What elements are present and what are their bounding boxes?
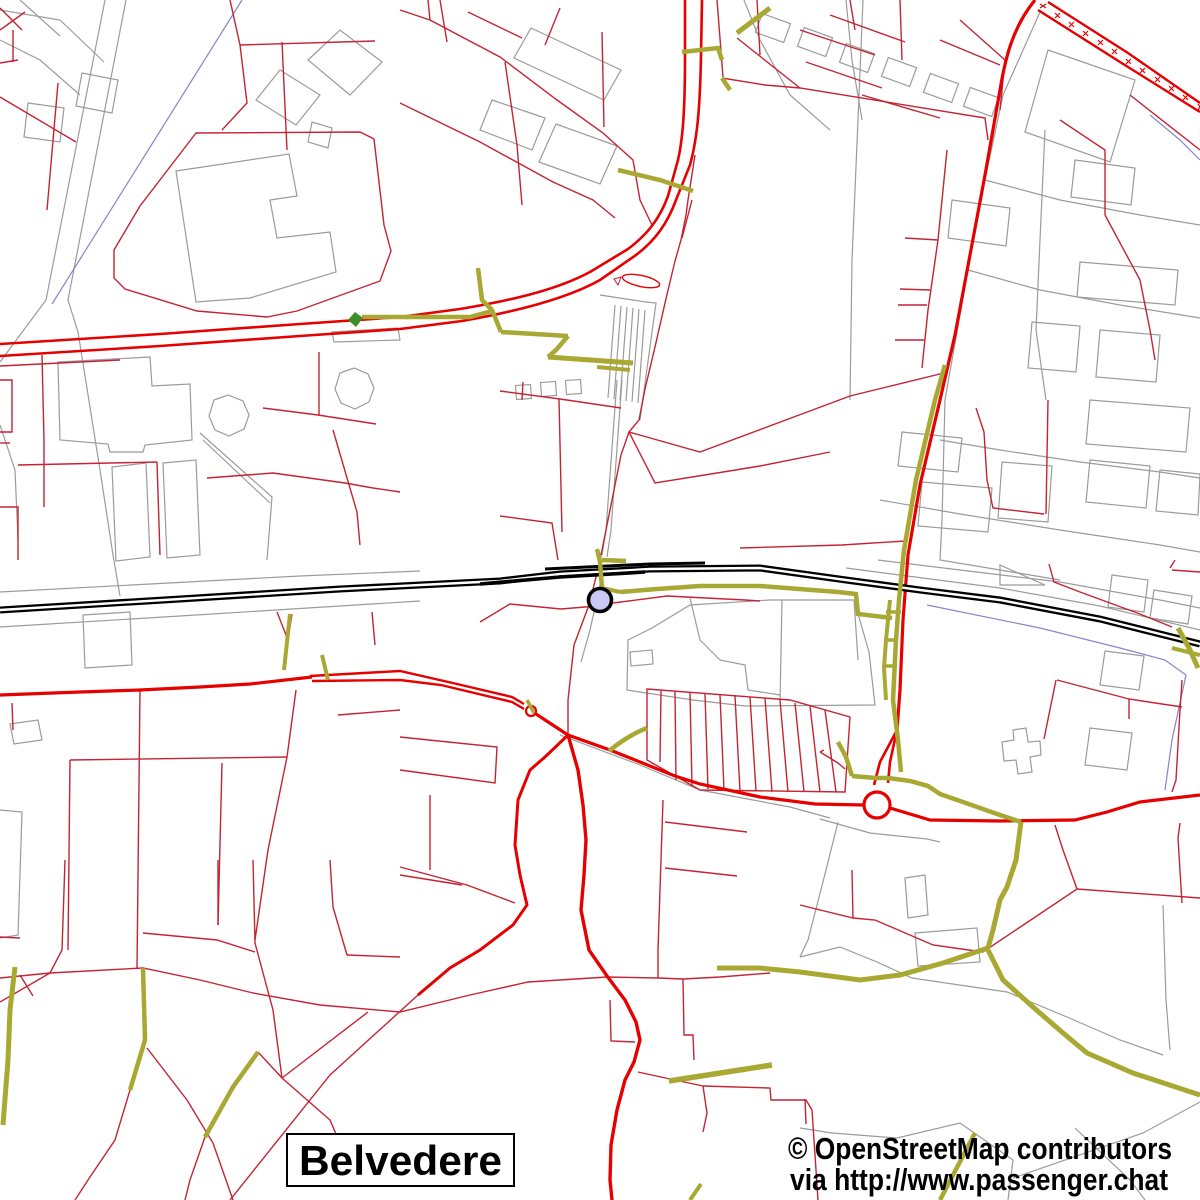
svg-text:via http://www.passenger.chat: via http://www.passenger.chat (790, 1162, 1168, 1197)
svg-text:© OpenStreetMap contributors: © OpenStreetMap contributors (788, 1131, 1172, 1166)
svg-text:Belvedere: Belvedere (299, 1137, 502, 1184)
